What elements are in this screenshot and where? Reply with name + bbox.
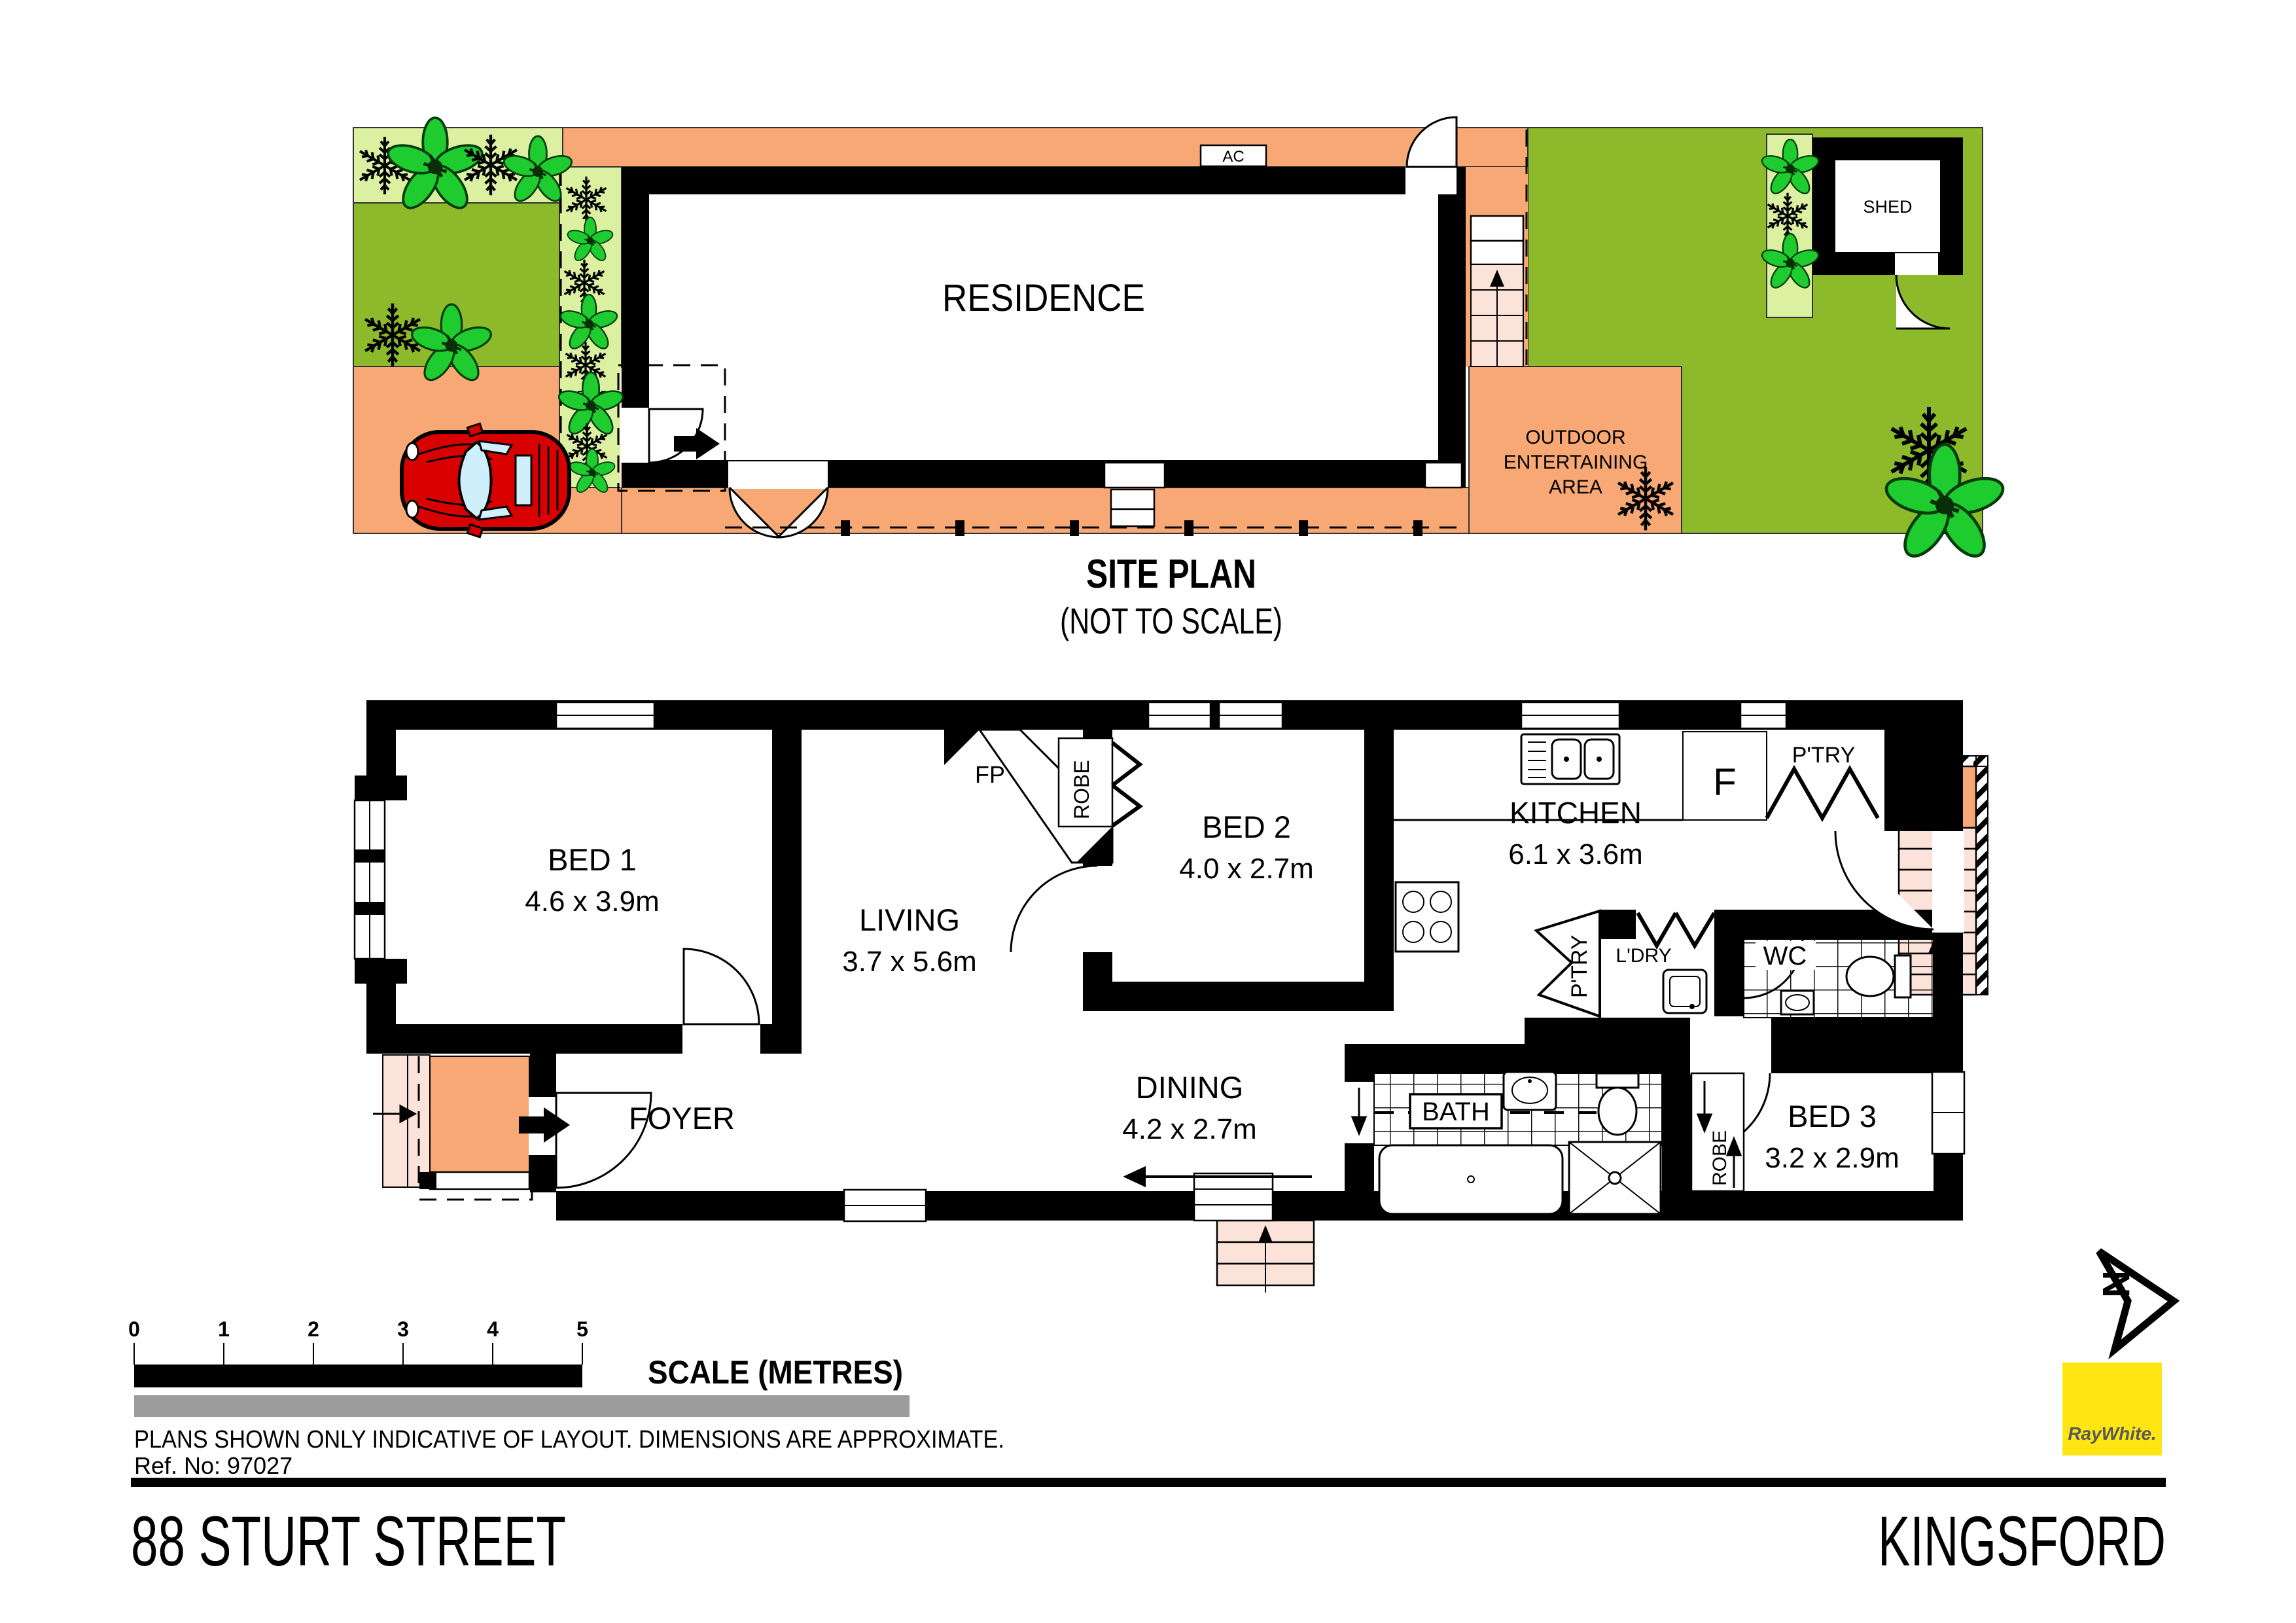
- porch-step-slab: [430, 1172, 529, 1189]
- floorplan-page: RESIDENCE AC PORCH OUTDOOR ENTERTAININ: [0, 0, 2296, 1623]
- outdoor-line2: ENTERTAINING: [1504, 452, 1648, 473]
- ptry-bottom-label: P'TRY: [1567, 935, 1592, 998]
- bed1-name: BED 1: [548, 842, 637, 877]
- address-text: 88 STURT STREET: [131, 1501, 566, 1580]
- scale-tick-5: 5: [576, 1317, 588, 1341]
- dining-name: DINING: [1136, 1070, 1244, 1105]
- scale-bar: 0 1 2 3 4 5 SCALE (METRES): [128, 1317, 910, 1417]
- bath-label: BATH: [1422, 1097, 1490, 1126]
- shed-label: SHED: [1863, 197, 1912, 217]
- south-window-2: [1425, 463, 1462, 488]
- bed2-name: BED 2: [1202, 810, 1291, 844]
- site-plan-title: SITE PLAN: [1086, 552, 1256, 597]
- residence-label: RESIDENCE: [942, 277, 1145, 319]
- grey-bar: [134, 1395, 910, 1417]
- ac-label: AC: [1222, 148, 1244, 166]
- scale-tick-2: 2: [308, 1317, 319, 1341]
- site-top-path: [563, 128, 1528, 167]
- south-window: [1104, 463, 1165, 488]
- rear-entry-steps: [1217, 1221, 1314, 1293]
- site-plan-subtitle: (NOT TO SCALE): [1060, 600, 1282, 641]
- ref-number: Ref. No: 97027: [134, 1452, 292, 1479]
- south-step-2: [1111, 509, 1154, 526]
- outdoor-line1: OUTDOOR: [1525, 427, 1625, 448]
- car: [402, 423, 569, 537]
- bed1-door-arc: [684, 949, 759, 1024]
- porch-door-gap: [620, 408, 650, 463]
- north-label: N: [2094, 1270, 2137, 1298]
- scale-tick-1: 1: [218, 1317, 230, 1341]
- bed1-dims: 4.6 x 3.9m: [525, 885, 659, 918]
- rear-door-arc: [1407, 117, 1457, 167]
- floor-plan: FP ROBE: [355, 700, 1988, 1293]
- north-arrow: N: [2094, 1251, 2174, 1349]
- suburb-text: KINGSFORD: [1878, 1501, 2166, 1580]
- dining-dims: 4.2 x 2.7m: [1122, 1113, 1256, 1145]
- fp-label: FP: [975, 761, 1005, 788]
- laundry-fittings: [1663, 970, 1706, 1013]
- ldry-label: L'DRY: [1616, 945, 1671, 967]
- scale-tick-0: 0: [128, 1317, 140, 1341]
- site-stairs: [1471, 216, 1523, 366]
- french-door-gap: [728, 461, 828, 489]
- living-name: LIVING: [859, 902, 960, 937]
- brand-logo: RayWhite.: [2062, 1363, 2162, 1455]
- fridge-label: F: [1713, 761, 1736, 804]
- kitchen-dims: 6.1 x 3.6m: [1508, 838, 1642, 870]
- outdoor-line3: AREA: [1549, 476, 1602, 498]
- bed3-name: BED 3: [1788, 1099, 1877, 1133]
- divider-rule: [131, 1478, 2166, 1487]
- wc-label: WC: [1763, 942, 1807, 971]
- bath-room: [1374, 1072, 1662, 1214]
- ptry-top-label: P'TRY: [1792, 743, 1856, 768]
- disclaimer-text: PLANS SHOWN ONLY INDICATIVE OF LAYOUT. D…: [134, 1426, 1004, 1454]
- residence-building: RESIDENCE AC: [620, 117, 1466, 537]
- scale-tick-4: 4: [487, 1317, 499, 1341]
- scale-tick-3: 3: [397, 1317, 409, 1341]
- front-porch: [430, 1056, 529, 1172]
- living-dims: 3.7 x 5.6m: [842, 946, 976, 978]
- site-plan: RESIDENCE AC PORCH OUTDOOR ENTERTAININ: [353, 117, 2007, 641]
- kitchen-name: KITCHEN: [1510, 796, 1642, 830]
- bay-window: [355, 776, 407, 984]
- foyer-label: FOYER: [629, 1101, 735, 1135]
- south-step-1: [1111, 490, 1154, 509]
- rear-door-gap: [1405, 166, 1457, 194]
- scale-label: SCALE (METRES): [648, 1354, 903, 1391]
- entry-steps-outer: [383, 1055, 408, 1187]
- bed3-robe-label: ROBE: [1709, 1130, 1731, 1186]
- brand-logo-text: RayWhite.: [2068, 1423, 2156, 1444]
- bed2-dims: 4.0 x 2.7m: [1179, 853, 1313, 885]
- plan-canvas: RESIDENCE AC PORCH OUTDOOR ENTERTAININ: [0, 0, 2296, 1623]
- bed2-robe-label: ROBE: [1070, 760, 1093, 819]
- bed3-dims: 3.2 x 2.9m: [1765, 1142, 1899, 1174]
